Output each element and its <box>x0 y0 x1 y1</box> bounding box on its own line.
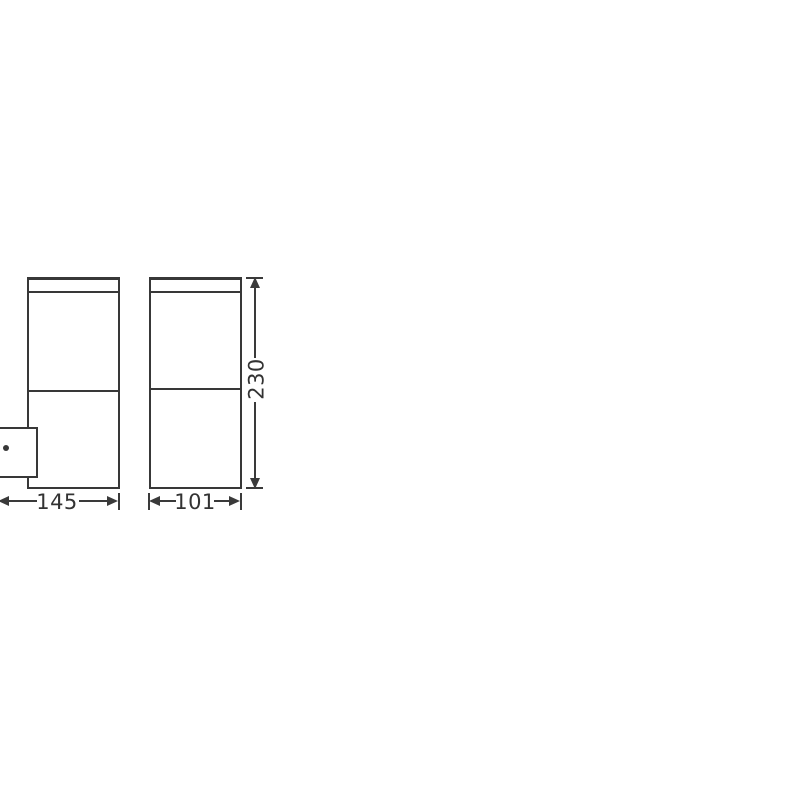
side-view-cap-line <box>29 291 118 293</box>
dim-101-arrow-right-icon <box>229 496 240 506</box>
technical-drawing-canvas: 145 101 230 <box>0 0 800 800</box>
front-view-body-outline <box>149 277 242 489</box>
dim-145-line-left <box>8 500 37 502</box>
dim-230-line-lower <box>254 402 256 478</box>
dim-101-extension-tick-right <box>240 493 242 510</box>
dim-145-label: 145 <box>36 492 78 513</box>
dim-101-line-right <box>214 500 230 502</box>
dim-101-label: 101 <box>174 492 216 513</box>
front-view-division-line <box>151 388 240 390</box>
dim-230-label: 230 <box>247 358 268 400</box>
front-view-cap-line <box>151 291 240 293</box>
dim-101-arrow-left-icon <box>149 496 160 506</box>
side-view-body-outline <box>27 277 120 489</box>
dim-145-arrow-right-icon <box>107 496 118 506</box>
dim-145-line-right <box>79 500 108 502</box>
wall-mount-box <box>0 427 38 478</box>
side-view-division-line <box>29 390 118 392</box>
dim-230-extension-tick-bottom <box>246 487 263 489</box>
dim-230-line-upper <box>254 287 256 358</box>
mount-screw-dot <box>3 445 9 451</box>
dim-145-extension-tick-right <box>118 493 120 510</box>
